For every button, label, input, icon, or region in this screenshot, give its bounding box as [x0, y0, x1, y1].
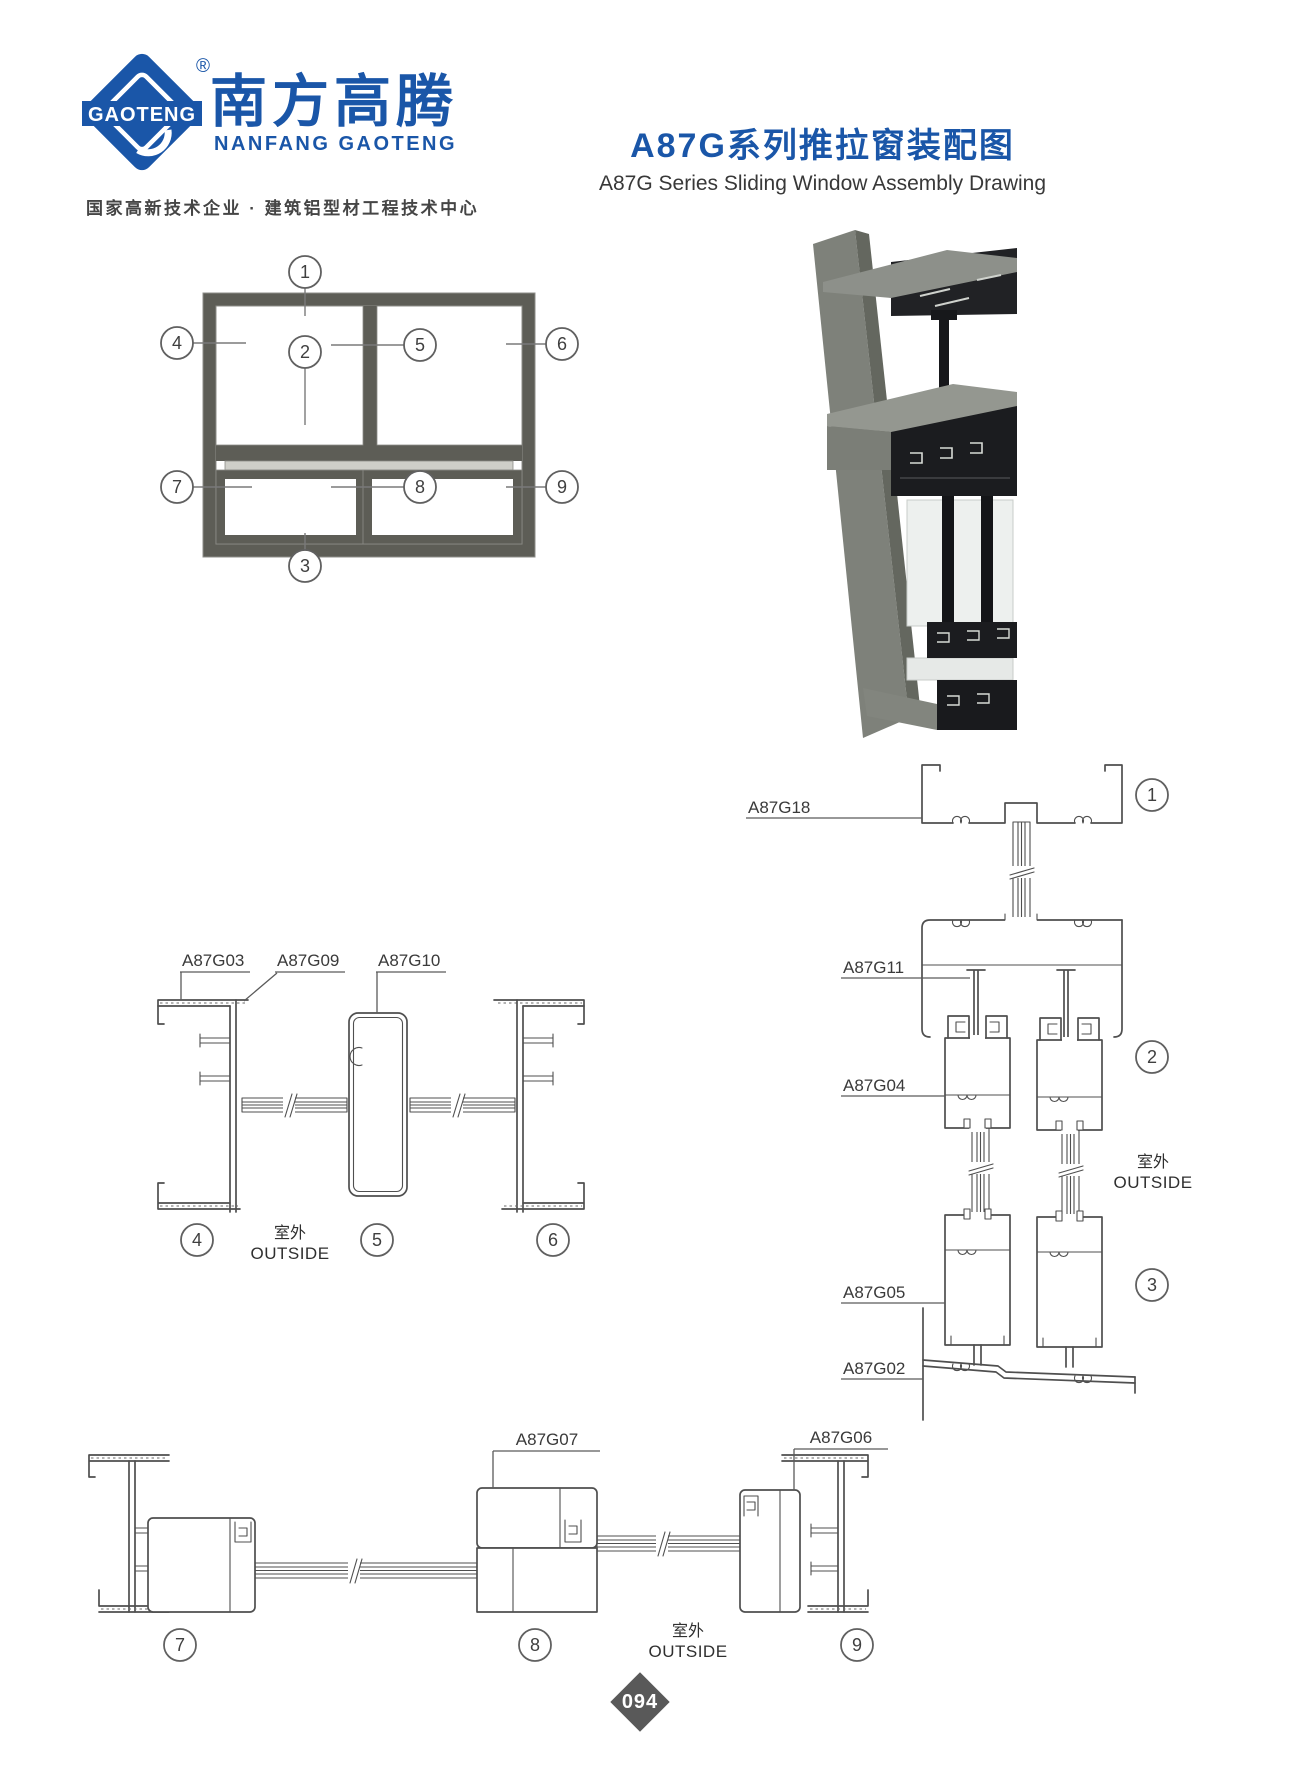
- profile-labels: A87G07 A87G06: [493, 1428, 888, 1490]
- svg-text:9: 9: [557, 477, 567, 497]
- profile-labels: A87G03 A87G09 A87G10: [180, 951, 446, 1013]
- callout-1: 1: [289, 256, 321, 288]
- outside-label-cn: 室外: [274, 1224, 306, 1242]
- callout-2: 2: [1136, 1041, 1168, 1073]
- svg-text:3: 3: [1147, 1275, 1157, 1295]
- label-a87g04: A87G04: [843, 1076, 905, 1095]
- callout-4: 4: [161, 327, 193, 359]
- callout-4: 4: [181, 1224, 213, 1256]
- window-elevation-diagram: 1 2 3 4 5 6 7 8 9: [140, 240, 600, 585]
- catalog-page: GAOTENG ® 南方高腾 NANFANG GAOTENG 国家高新技术企业 …: [0, 0, 1300, 1775]
- svg-text:9: 9: [852, 1635, 862, 1655]
- svg-text:1: 1: [1147, 785, 1157, 805]
- svg-text:6: 6: [557, 334, 567, 354]
- svg-text:4: 4: [192, 1230, 202, 1250]
- outside-label-cn: 室外: [672, 1622, 704, 1640]
- label-a87g06: A87G06: [810, 1428, 872, 1447]
- label-a87g11: A87G11: [843, 958, 904, 977]
- callout-6: 6: [537, 1224, 569, 1256]
- assembly-3d-render: [695, 218, 1070, 753]
- window-frame: [203, 293, 535, 557]
- label-a87g03: A87G03: [182, 951, 244, 970]
- glass-strip: [1009, 822, 1034, 922]
- horizontal-section-bottom: A87G07 A87G06 7 8 9 室外 OUTSIDE: [60, 1420, 905, 1670]
- label-a87g09: A87G09: [277, 951, 339, 970]
- svg-text:8: 8: [415, 477, 425, 497]
- logo-wordmark: GAOTENG: [88, 104, 196, 126]
- horizontal-section-mid: A87G03 A87G09 A87G10 4 5 6 室外 OUTSIDE: [140, 930, 600, 1270]
- callout-8: 8: [404, 471, 436, 503]
- page-number: 094: [622, 1691, 658, 1714]
- profile-a87g05-sash: [945, 1209, 1010, 1365]
- callout-6: 6: [546, 328, 578, 360]
- glass-strip: [968, 1118, 993, 1218]
- svg-text:5: 5: [415, 335, 425, 355]
- callout-7: 7: [164, 1629, 196, 1661]
- page-title-block: A87G系列推拉窗装配图 A87G Series Sliding Window …: [545, 118, 1100, 196]
- svg-text:7: 7: [172, 477, 182, 497]
- label-a87g18: A87G18: [748, 798, 810, 817]
- vertical-section-right: A87G18 A87G11 A87G04 A87G05 A87G02 1 2 3…: [740, 755, 1200, 1427]
- svg-text:1: 1: [300, 262, 310, 282]
- label-a87g05: A87G05: [843, 1283, 905, 1302]
- brand-name-en: NANFANG GAOTENG: [214, 133, 457, 156]
- label-a87g02: A87G02: [843, 1359, 905, 1378]
- profile-sash: [1037, 1211, 1102, 1367]
- callout-8: 8: [519, 1629, 551, 1661]
- outside-label-en: OUTSIDE: [648, 1642, 727, 1661]
- callout-1: 1: [1136, 779, 1168, 811]
- callout-7: 7: [161, 471, 193, 503]
- profile-a87g18-outline: [922, 765, 1122, 823]
- profile-labels: A87G18 A87G11 A87G04 A87G05 A87G02: [746, 798, 970, 1379]
- glass-band-left: [255, 1559, 477, 1583]
- callout-3: 3: [289, 550, 321, 582]
- profile-right-sash: [740, 1490, 800, 1612]
- registered-mark: ®: [196, 56, 210, 77]
- svg-text:4: 4: [172, 333, 182, 353]
- company-tagline: 国家高新技术企业 · 建筑铝型材工程技术中心: [86, 194, 479, 219]
- page-title-en: A87G Series Sliding Window Assembly Draw…: [545, 172, 1100, 196]
- profile-sash: [1037, 1018, 1102, 1134]
- outside-label-en: OUTSIDE: [250, 1244, 329, 1263]
- gaoteng-logo: GAOTENG ®: [80, 44, 220, 189]
- profile-a87g03-outline: [158, 1000, 248, 1212]
- svg-text:3: 3: [300, 556, 310, 576]
- profile-a87g10-outline: [349, 1013, 407, 1196]
- callout-5: 5: [404, 329, 436, 361]
- page-title-cn: A87G系列推拉窗装配图: [545, 118, 1100, 167]
- svg-text:7: 7: [175, 1635, 185, 1655]
- glass-band-right: [597, 1532, 740, 1556]
- profile-left-sash: [148, 1518, 255, 1612]
- callout-2: 2: [289, 336, 321, 368]
- profile-a87g07-assembly: [477, 1488, 597, 1612]
- svg-text:8: 8: [530, 1635, 540, 1655]
- outside-label-en: OUTSIDE: [1113, 1173, 1192, 1192]
- glass-strip: [1058, 1120, 1083, 1220]
- label-a87g10: A87G10: [378, 951, 440, 970]
- callout-9: 9: [841, 1629, 873, 1661]
- page-number-badge: 094: [608, 1670, 672, 1734]
- svg-text:5: 5: [372, 1230, 382, 1250]
- svg-text:2: 2: [300, 342, 310, 362]
- callout-9: 9: [546, 471, 578, 503]
- svg-text:6: 6: [548, 1230, 558, 1250]
- callout-5: 5: [361, 1224, 393, 1256]
- label-a87g07: A87G07: [516, 1430, 578, 1449]
- glass-band: [242, 1094, 347, 1117]
- callout-3: 3: [1136, 1269, 1168, 1301]
- glass-band: [410, 1094, 515, 1117]
- svg-text:2: 2: [1147, 1047, 1157, 1067]
- outside-label-cn: 室外: [1137, 1153, 1169, 1171]
- brand-name-cn: 南方高腾: [210, 56, 458, 138]
